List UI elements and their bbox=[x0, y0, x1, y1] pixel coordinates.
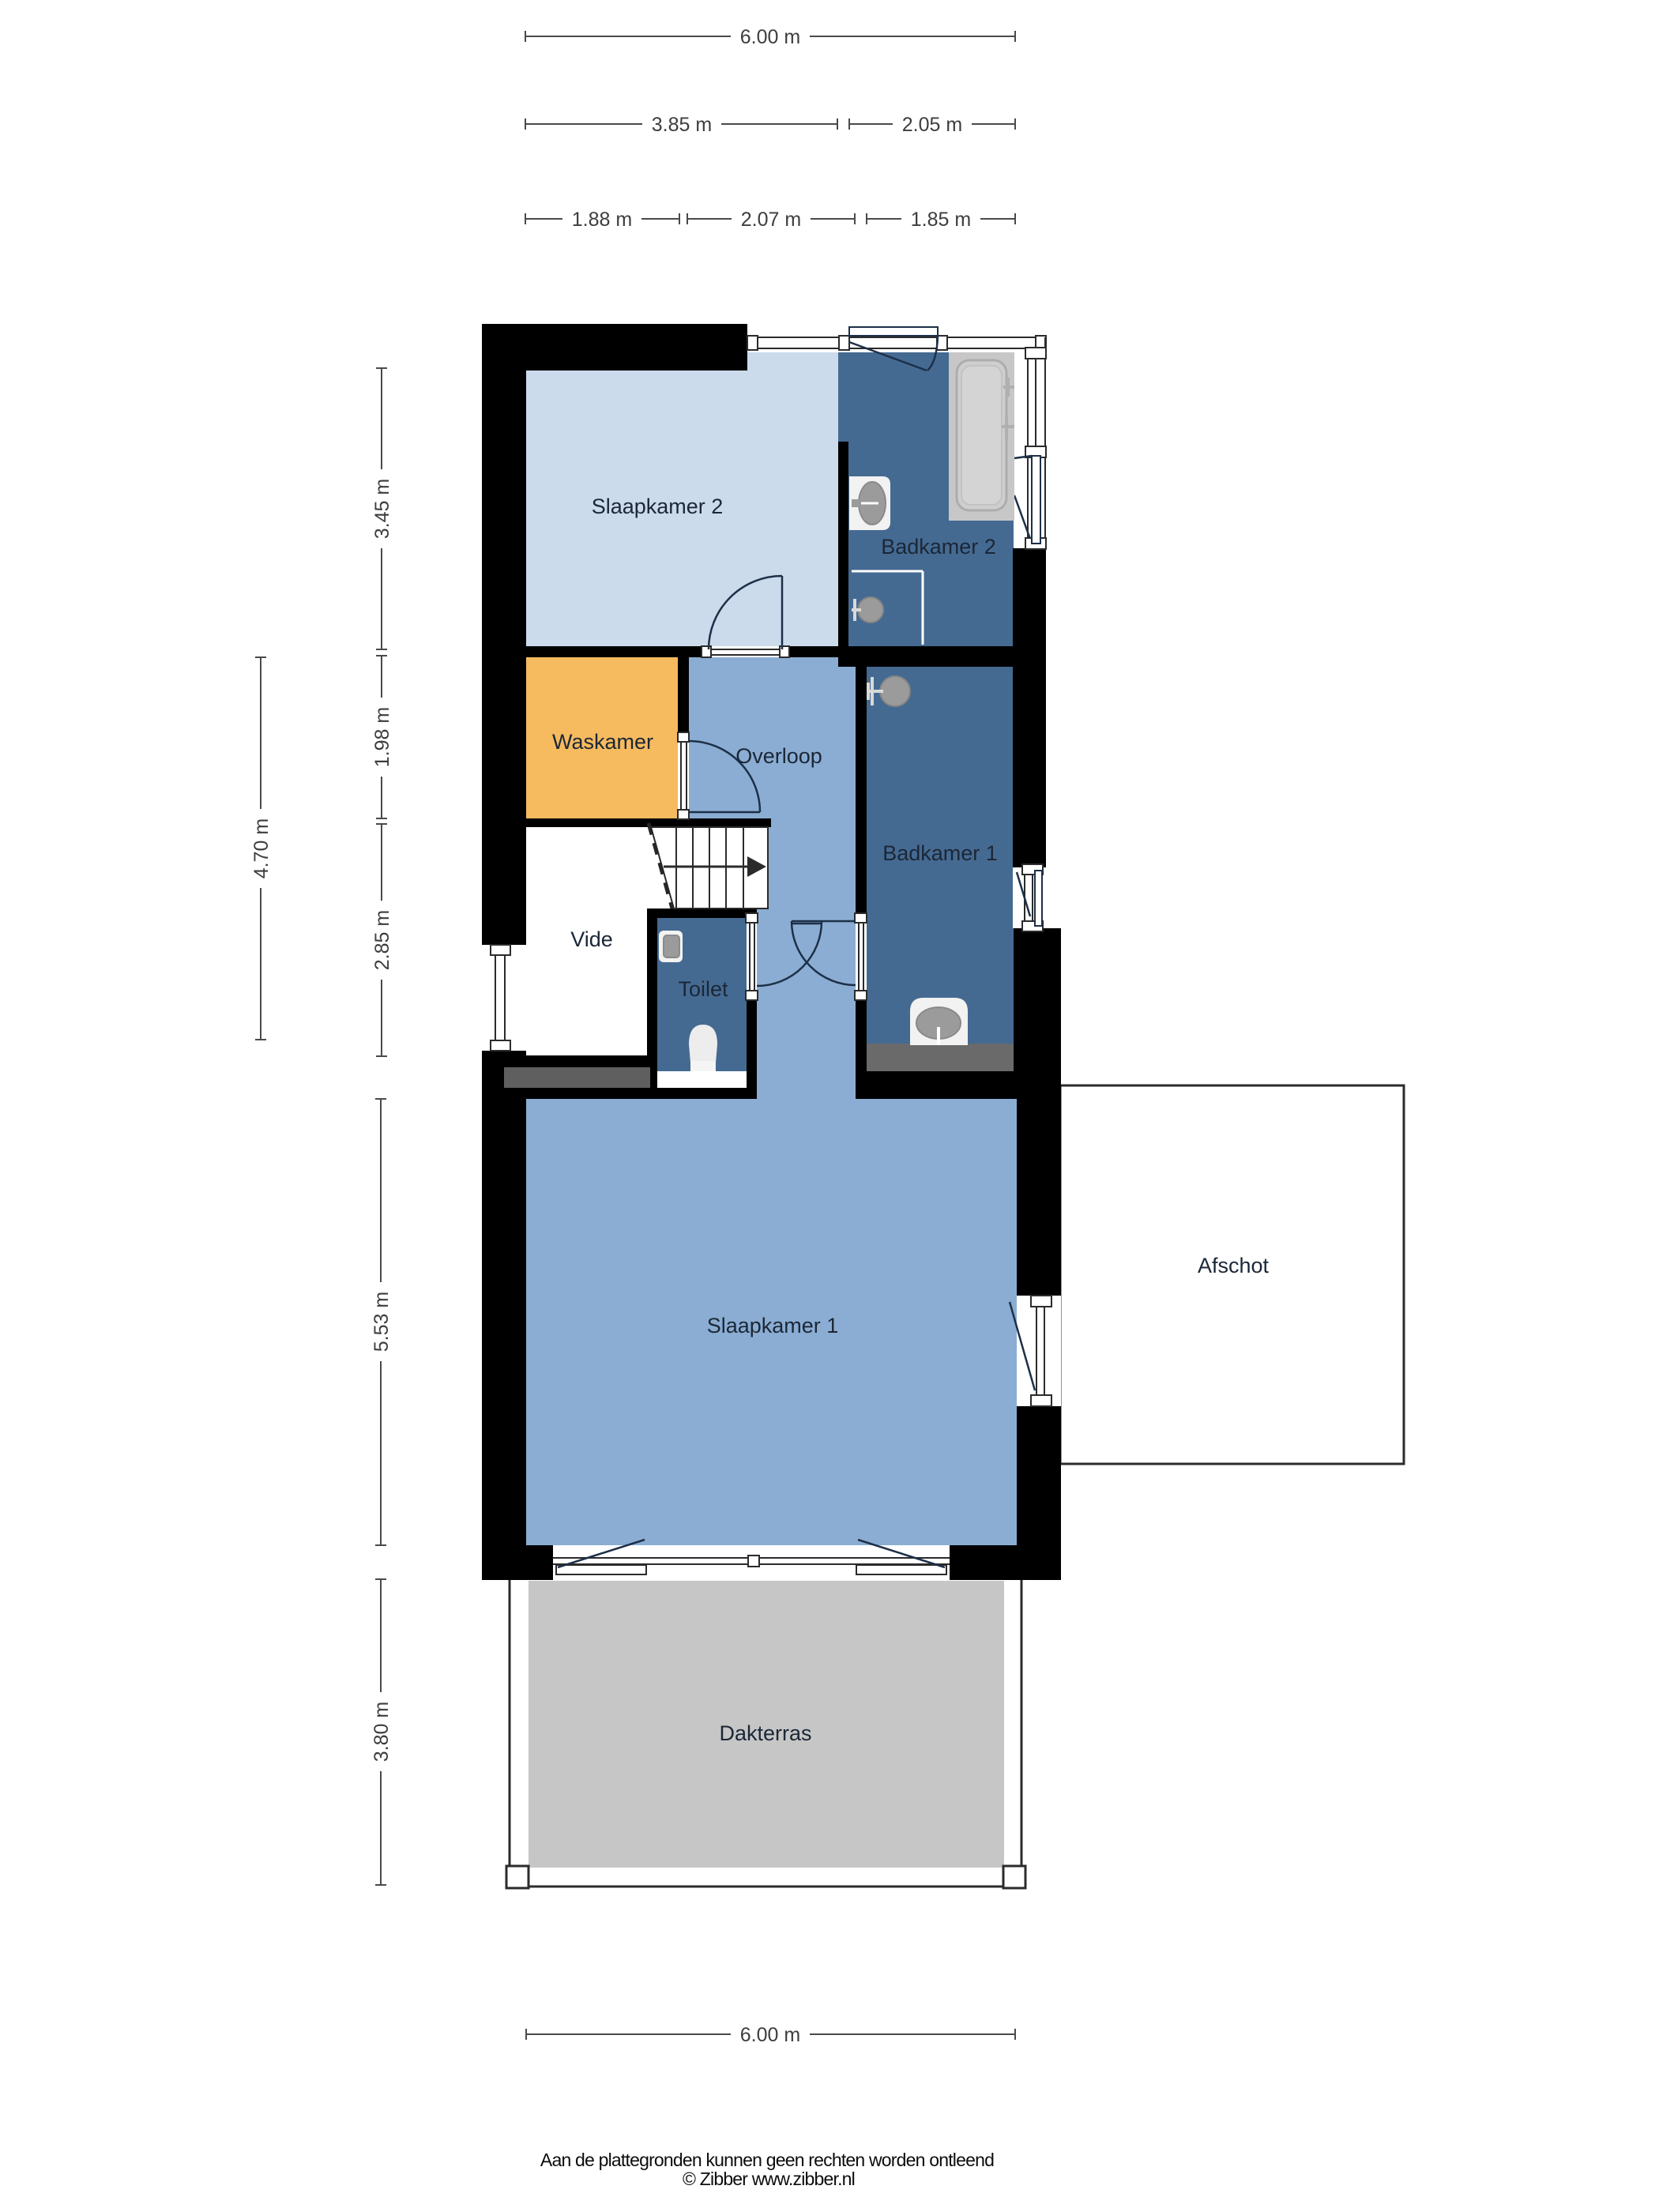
svg-text:Badkamer 2: Badkamer 2 bbox=[881, 535, 996, 559]
svg-text:2.85 m: 2.85 m bbox=[371, 910, 393, 970]
svg-text:1.88 m: 1.88 m bbox=[572, 209, 632, 231]
svg-text:3.80 m: 3.80 m bbox=[371, 1702, 393, 1762]
svg-text:Slaapkamer 1: Slaapkamer 1 bbox=[707, 1314, 839, 1337]
svg-text:Waskamer: Waskamer bbox=[552, 730, 653, 754]
svg-text:Slaapkamer 2: Slaapkamer 2 bbox=[592, 495, 724, 518]
svg-text:Dakterras: Dakterras bbox=[719, 1721, 811, 1745]
svg-text:Toilet: Toilet bbox=[678, 977, 728, 1001]
svg-text:Aan de plattegronden kunnen ge: Aan de plattegronden kunnen geen rechten… bbox=[540, 2150, 994, 2170]
svg-text:3.45 m: 3.45 m bbox=[371, 479, 393, 539]
svg-text:6.00 m: 6.00 m bbox=[740, 26, 800, 48]
svg-text:2.05 m: 2.05 m bbox=[902, 114, 962, 136]
svg-text:1.98 m: 1.98 m bbox=[371, 707, 393, 767]
svg-text:Vide: Vide bbox=[570, 927, 613, 951]
svg-text:Badkamer 1: Badkamer 1 bbox=[882, 841, 998, 865]
svg-text:Afschot: Afschot bbox=[1198, 1254, 1270, 1277]
svg-text:5.53 m: 5.53 m bbox=[371, 1292, 393, 1352]
svg-text:© Zibber www.zibber.nl: © Zibber www.zibber.nl bbox=[683, 2169, 855, 2189]
svg-text:4.70 m: 4.70 m bbox=[250, 818, 273, 878]
svg-text:2.07 m: 2.07 m bbox=[741, 209, 801, 231]
svg-text:6.00 m: 6.00 m bbox=[740, 2024, 800, 2046]
svg-text:3.85 m: 3.85 m bbox=[652, 114, 712, 136]
svg-text:1.85 m: 1.85 m bbox=[911, 209, 971, 231]
svg-text:Overloop: Overloop bbox=[735, 744, 822, 768]
